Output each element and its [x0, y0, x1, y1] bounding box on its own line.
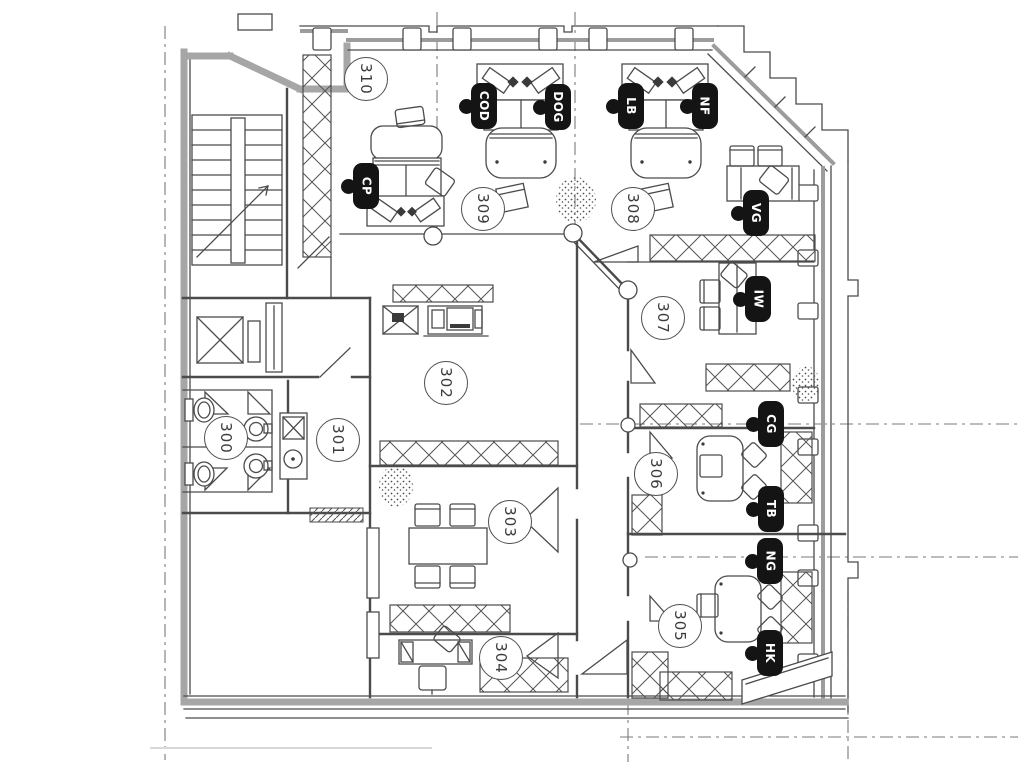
meeting-table — [409, 504, 487, 588]
room-label-305: 305 — [658, 604, 702, 648]
room-label-308: 308 — [611, 187, 655, 231]
copier-equipment — [383, 306, 488, 336]
kitchen-counter — [280, 413, 307, 479]
floor-plan-page: 300 301 302 303 304 305 306 307 308 309 … — [0, 0, 1024, 768]
room-label-302: 302 — [424, 361, 468, 405]
person-badge-vg: VG — [731, 190, 769, 236]
toilet-icon — [185, 462, 214, 486]
person-badge-lb: LB — [606, 83, 644, 129]
room-label-304: 304 — [479, 636, 523, 680]
room-label-307: 307 — [641, 296, 685, 340]
person-badge-cp: CP — [341, 163, 379, 209]
room-label-310: 310 — [344, 57, 388, 101]
person-badge-dog: DOG — [533, 84, 571, 130]
room-label-306: 306 — [634, 452, 678, 496]
person-badge-iw: IW — [733, 276, 771, 322]
room-label-300: 300 — [204, 416, 248, 460]
person-badge-tb: TB — [746, 486, 784, 532]
person-badge-cg: CG — [746, 401, 784, 447]
elevator-icon — [197, 303, 282, 372]
desk-304 — [399, 625, 472, 694]
room-label-301: 301 — [316, 418, 360, 462]
person-badge-hk: HK — [745, 630, 783, 676]
toilet-icon — [185, 398, 214, 422]
room-label-309: 309 — [461, 187, 505, 231]
person-badge-nf: NF — [680, 83, 718, 129]
room-label-303: 303 — [488, 500, 532, 544]
corridor-nodes — [564, 224, 637, 567]
sink-icon — [244, 454, 272, 478]
person-badge-cod: COD — [459, 83, 497, 129]
stairs-icon — [192, 115, 282, 265]
sink-icon — [244, 417, 272, 441]
wall-slabs — [367, 528, 379, 658]
person-badge-ng: NG — [745, 538, 783, 584]
